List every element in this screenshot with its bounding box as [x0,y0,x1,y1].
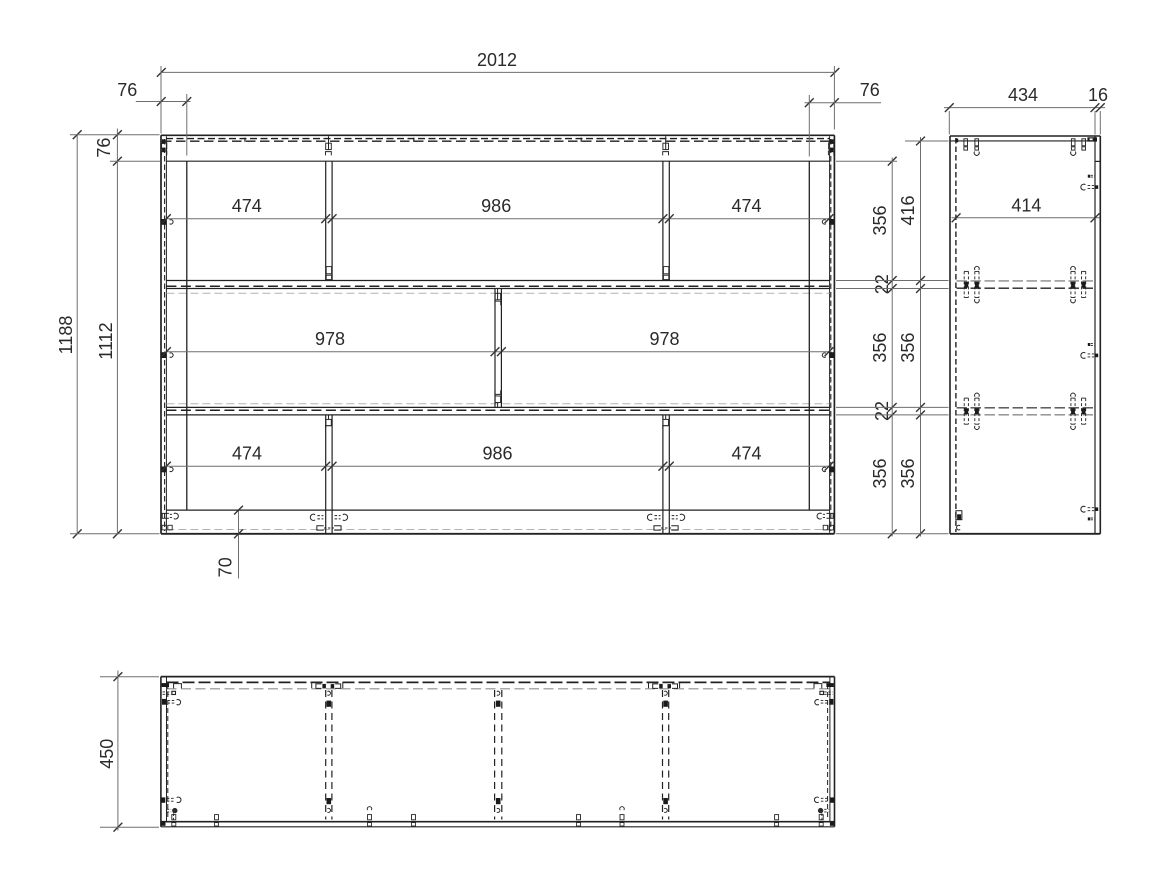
svg-text:414: 414 [1011,195,1041,215]
svg-text:450: 450 [97,739,117,769]
svg-text:474: 474 [731,196,761,216]
svg-text:16: 16 [1088,85,1108,105]
svg-text:986: 986 [481,196,511,216]
svg-text:356: 356 [898,458,918,488]
svg-text:474: 474 [731,444,761,464]
svg-text:356: 356 [870,458,890,488]
svg-text:76: 76 [117,80,137,100]
svg-text:76: 76 [860,80,880,100]
svg-text:978: 978 [649,329,679,349]
svg-text:1188: 1188 [56,316,76,355]
svg-text:76: 76 [94,138,114,158]
svg-text:434: 434 [1008,85,1038,105]
svg-text:978: 978 [315,329,345,349]
svg-text:356: 356 [870,333,890,363]
svg-text:2012: 2012 [477,50,517,70]
svg-text:416: 416 [898,195,918,225]
svg-text:474: 474 [232,196,262,216]
svg-text:474: 474 [232,444,262,464]
svg-text:356: 356 [870,205,890,235]
svg-text:22: 22 [872,274,892,294]
svg-text:70: 70 [215,557,235,577]
svg-text:22: 22 [872,401,892,421]
svg-text:1112: 1112 [96,322,116,359]
svg-text:986: 986 [482,444,512,464]
svg-text:356: 356 [898,333,918,363]
